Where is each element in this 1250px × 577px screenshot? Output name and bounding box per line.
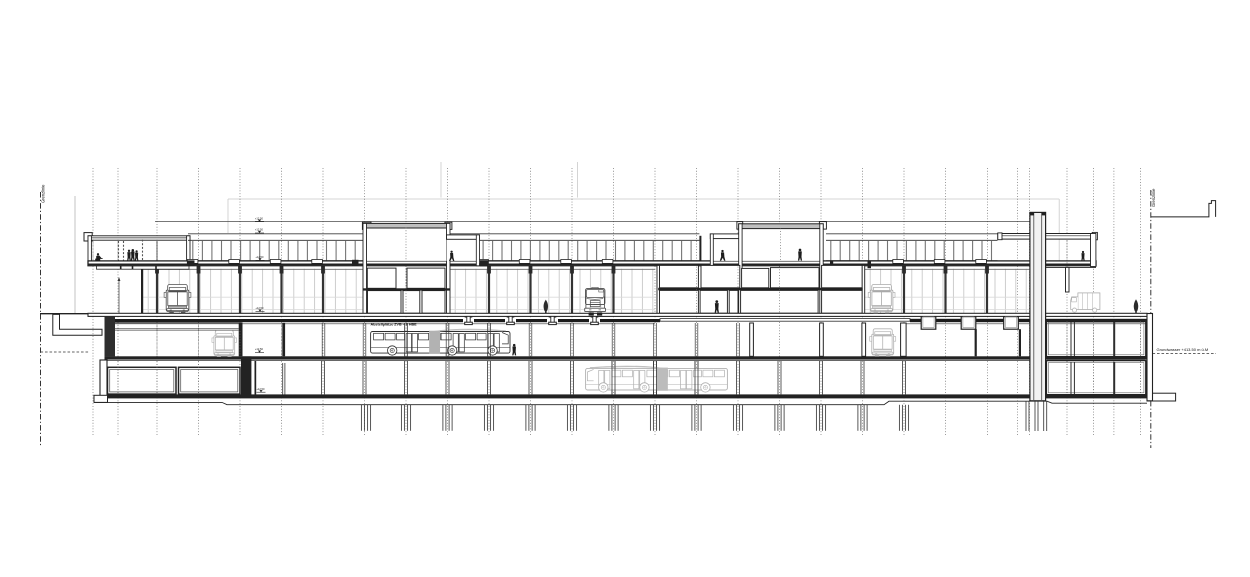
svg-text:Grenzlinie: Grenzlinie <box>1151 188 1156 207</box>
svg-text:+12.50: +12.50 <box>255 228 264 232</box>
svg-text:+12.50: +12.50 <box>255 347 264 351</box>
svg-text:+12.50: +12.50 <box>255 216 264 220</box>
svg-text:Abstellplätze ZVB – 6 HBE: Abstellplätze ZVB – 6 HBE <box>371 322 418 326</box>
svg-text:Grundwasser +413.50 m ü.M: Grundwasser +413.50 m ü.M <box>1157 347 1209 352</box>
svg-text:+12.50: +12.50 <box>256 387 265 391</box>
svg-text:+12.50: +12.50 <box>255 255 264 259</box>
svg-text:+12.50: +12.50 <box>255 306 264 310</box>
svg-text:Grenzlinie: Grenzlinie <box>41 184 46 203</box>
